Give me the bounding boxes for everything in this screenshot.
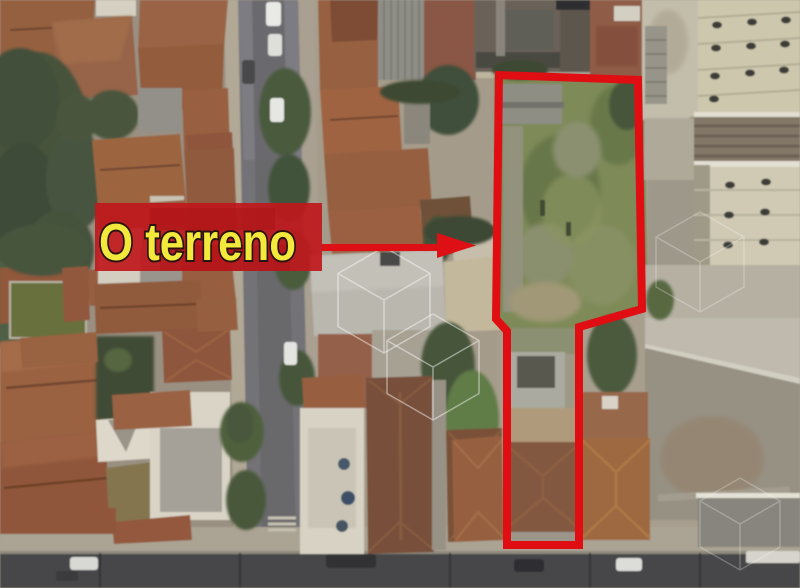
- svg-text:O terreno: O terreno: [99, 214, 296, 272]
